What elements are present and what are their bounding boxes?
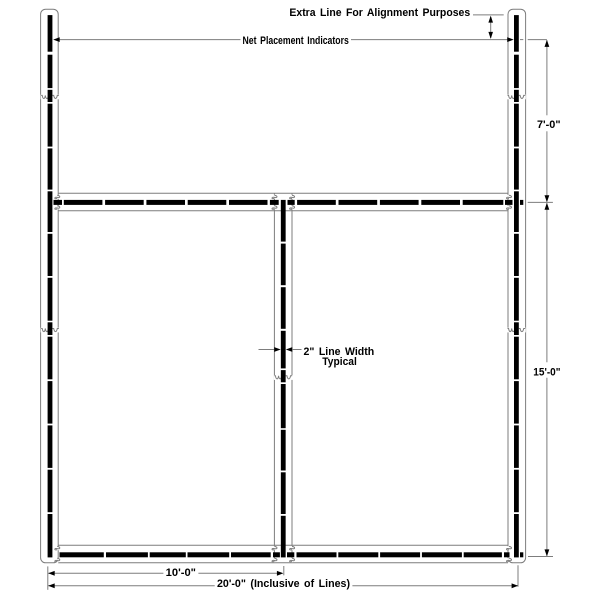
svg-text:20'-0" (Inclusive of Lines): 20'-0" (Inclusive of Lines) [217,578,350,590]
svg-text:10'-0": 10'-0" [166,567,196,579]
svg-text:Typical: Typical [322,356,357,368]
svg-text:Net Placement Indicators: Net Placement Indicators [243,35,349,47]
svg-text:15'-0": 15'-0" [533,367,560,379]
svg-text:7'-0": 7'-0" [537,119,561,131]
svg-text:Extra Line For Alignment Purpo: Extra Line For Alignment Purposes [289,7,470,19]
